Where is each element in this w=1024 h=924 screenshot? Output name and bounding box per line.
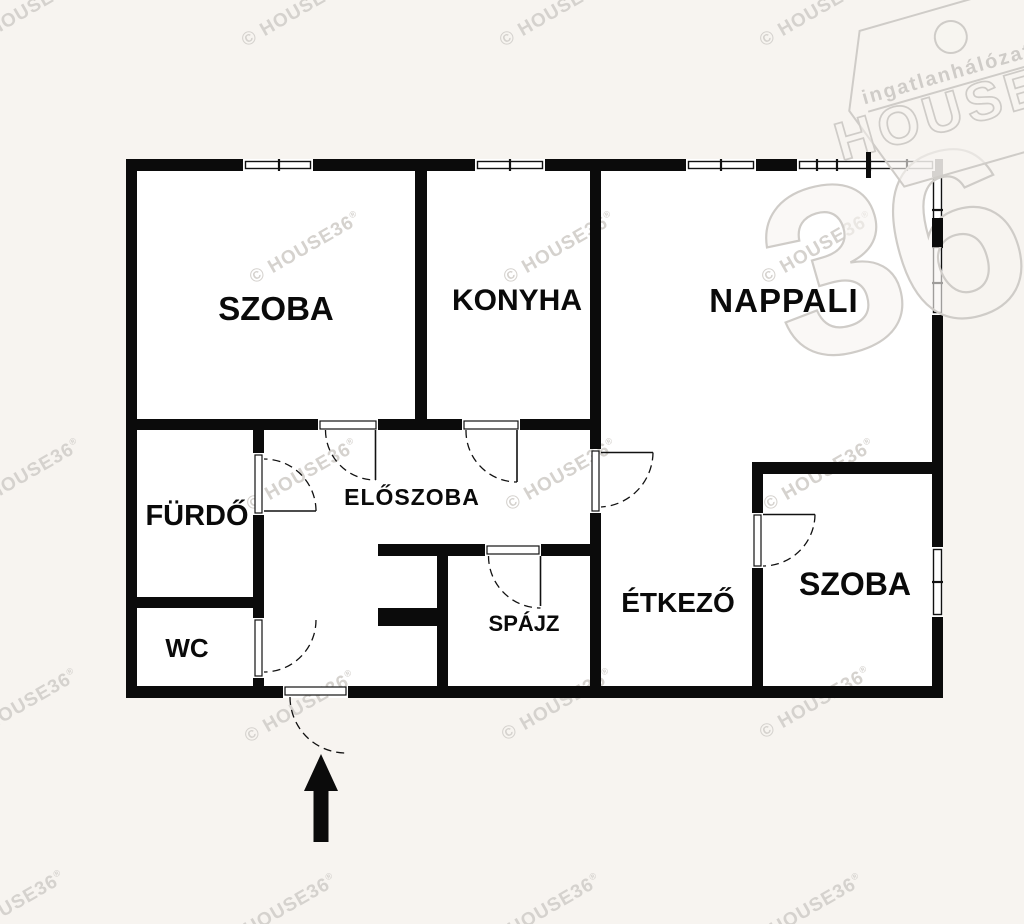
room-label-wc: WC (165, 633, 209, 663)
wall-segment (590, 513, 601, 698)
wall-segment (348, 686, 943, 698)
wall-segment (437, 556, 448, 686)
wall-segment (253, 515, 264, 597)
wall-segment (378, 608, 437, 626)
wall-segment (415, 171, 427, 430)
wall-segment (752, 568, 763, 686)
wall-segment (752, 474, 763, 513)
room-label-furdo: FÜRDŐ (145, 498, 248, 532)
wall-segment (752, 462, 943, 474)
room-label-etkezo: ÉTKEZŐ (621, 587, 735, 618)
window-dark-segment (932, 218, 943, 247)
wall-segment (253, 430, 264, 453)
door-threshold (255, 620, 262, 676)
door-threshold (487, 546, 539, 554)
wall-segment (313, 159, 475, 171)
wall-tick-mark (866, 152, 871, 178)
wall-segment (126, 686, 283, 698)
wall-segment (137, 597, 264, 608)
door-threshold (285, 687, 346, 695)
wall-segment (126, 159, 137, 698)
wall-segment (545, 159, 686, 171)
room-label-eloszoba: ELŐSZOBA (344, 483, 480, 510)
floorplan-page: © HOUSE36® (0, 0, 1024, 924)
wall-segment (137, 419, 318, 430)
door-threshold (464, 421, 518, 429)
wall-segment (253, 678, 264, 686)
floorplan-image: © HOUSE36® (0, 0, 1024, 924)
wall-segment (378, 544, 485, 556)
door-threshold (754, 515, 761, 566)
wall-segment (126, 159, 243, 171)
door-threshold (255, 455, 262, 513)
door-threshold (320, 421, 376, 429)
wall-segment (520, 419, 590, 430)
room-label-szoba-1: SZOBA (218, 290, 334, 327)
room-label-szoba-2: SZOBA (799, 566, 911, 602)
door-threshold (592, 451, 599, 511)
wall-segment (253, 608, 264, 618)
wall-segment (932, 617, 943, 698)
room-label-konyha: KONYHA (452, 284, 582, 317)
wall-segment (378, 419, 462, 430)
wall-segment (541, 544, 601, 556)
wall-segment (590, 171, 601, 449)
room-label-spajz: SPÁJZ (489, 611, 560, 636)
